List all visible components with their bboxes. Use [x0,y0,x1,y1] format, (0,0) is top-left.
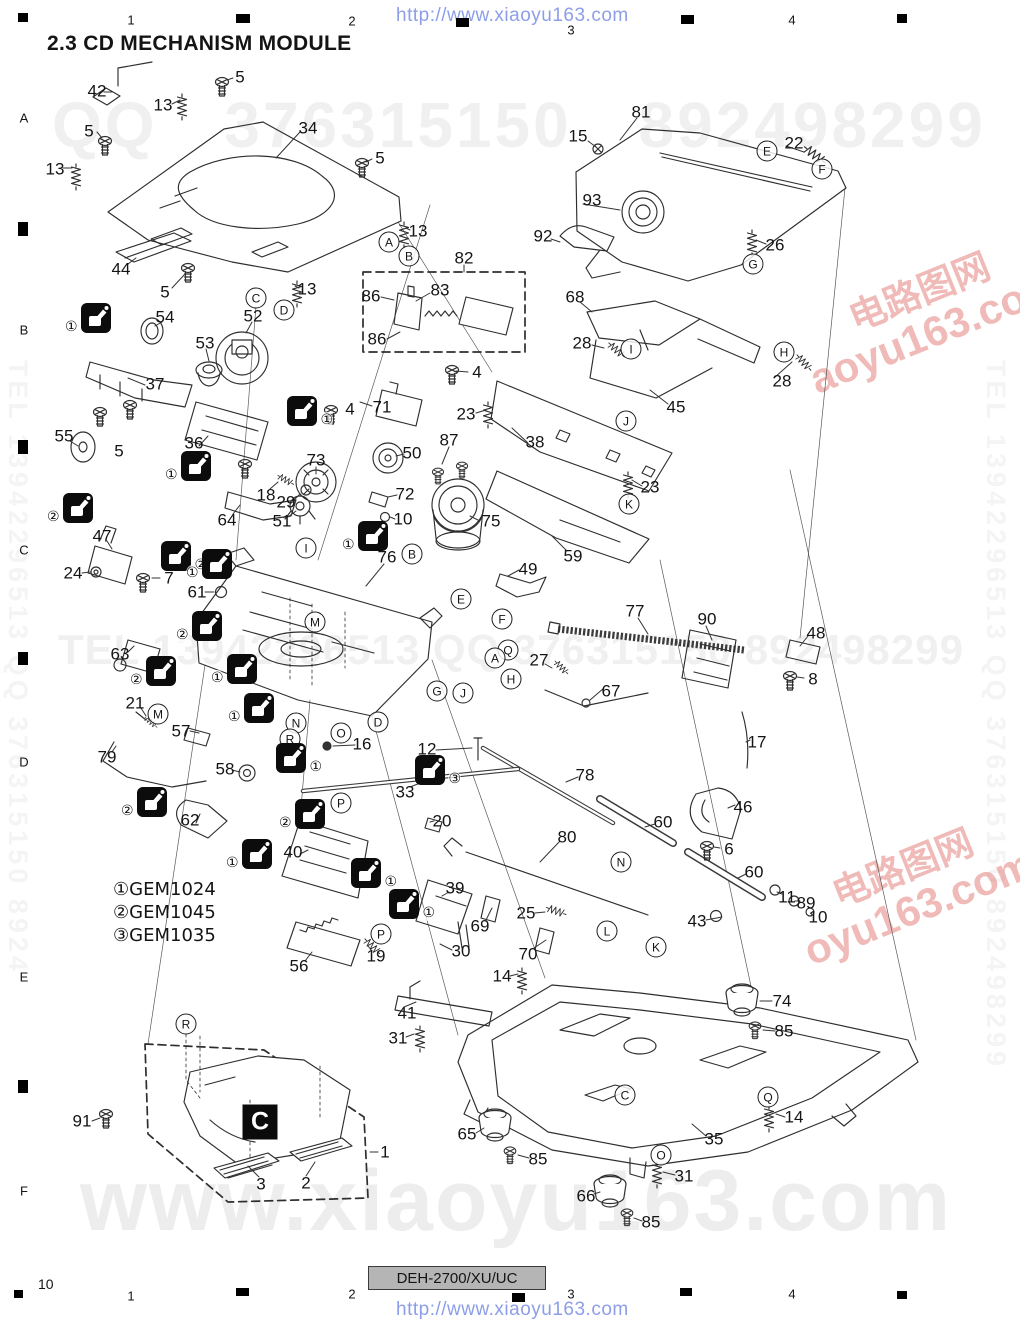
assembly-callout: C [615,1085,636,1106]
registration-mark [18,652,28,665]
assembly-callout: Q [758,1087,779,1108]
oil-can-icon [351,858,381,888]
part-number-label: 2 [301,1175,310,1192]
part-number-label: 59 [564,548,583,565]
part-number-label: 19 [367,948,386,965]
oil-can-icon [358,521,388,551]
part-number-label: 92 [534,228,553,245]
assembly-callout: K [646,937,667,958]
part-number-label: 54 [156,309,175,326]
grid-column-label: 2 [348,1287,355,1302]
registration-mark [456,18,469,27]
lubricant-icon: ① [389,889,419,919]
part-number-label: 14 [493,968,512,985]
part-number-label: 81 [632,104,651,121]
assembly-callout: L [597,921,618,942]
grease-type-marker: ① [211,670,224,686]
part-number-label: 25 [517,905,536,922]
part-number-label: 38 [526,434,545,451]
part-number-label: 13 [154,97,173,114]
lubricant-icon: ② [137,787,167,817]
part-number-label: 57 [172,723,191,740]
part-number-label: 13 [298,281,317,298]
part-number-label: 5 [84,123,93,140]
part-number-label: 71 [373,399,392,416]
registration-mark [18,222,28,236]
lubricant-icon: ① [242,839,272,869]
assembly-callout: M [148,704,169,725]
part-number-label: 21 [126,695,145,712]
part-number-label: 82 [455,250,474,267]
registration-mark [680,1288,692,1296]
grease-type-marker: ① [226,855,239,871]
grease-type-marker: ① [384,874,397,890]
part-number-label: 74 [773,993,792,1010]
lubricant-icon: ③ [415,755,445,785]
assembly-callout: M [305,612,326,633]
registration-mark [18,1080,28,1093]
part-number-label: 85 [529,1151,548,1168]
grease-type-marker: ① [422,905,435,921]
part-number-label: 78 [576,767,595,784]
registration-mark [681,15,694,24]
grid-row-label: B [20,323,29,338]
assembly-callout: J [453,683,474,704]
oil-can-icon [287,396,317,426]
part-number-label: 46 [734,799,753,816]
assembly-callout: O [331,723,352,744]
grease-type-marker: ① [342,537,355,553]
lubricant-icon: ② [63,493,93,523]
part-number-label: 29 [277,494,296,511]
assembly-callout: I [621,339,642,360]
grid-column-label: 1 [127,1289,134,1304]
part-number-label: 20 [433,813,452,830]
assembly-callout: D [368,712,389,733]
part-number-label: 65 [458,1126,477,1143]
part-number-label: 53 [196,335,215,352]
lubricant-icon: ① [202,549,232,579]
part-number-label: 43 [688,913,707,930]
part-number-label: 10 [809,909,828,926]
assembly-callout: E [757,141,778,162]
grease-type-marker: ② [130,672,143,688]
part-number-label: 11 [778,889,796,906]
part-number-label: 37 [146,376,165,393]
part-number-label: 31 [389,1030,408,1047]
part-number-label: 91 [73,1113,92,1130]
part-number-label: 56 [290,958,309,975]
oil-can-icon [202,549,232,579]
legend-item: ②GEM1045 [113,901,216,924]
lubricant-icon: ② [146,656,176,686]
lubricant-icon: ① [181,451,211,481]
part-number-label: 64 [218,512,237,529]
registration-mark [18,440,28,454]
part-number-label: 23 [457,406,476,423]
part-number-label: 31 [675,1168,694,1185]
part-number-label: 87 [440,432,459,449]
oil-can-icon [227,654,257,684]
part-number-label: 49 [519,561,538,578]
grease-type-marker: ③ [448,771,461,787]
part-number-label: 41 [398,1005,417,1022]
registration-mark [14,1290,23,1298]
registration-mark [18,13,28,22]
model-number-box: DEH-2700/XU/UC [368,1266,546,1290]
part-number-label: 63 [111,646,130,663]
legend-item: ①GEM1024 [113,878,216,901]
part-number-label: 61 [188,584,207,601]
registration-mark [512,1293,525,1302]
part-number-label: 28 [773,373,792,390]
page-number: 10 [38,1276,54,1292]
grid-column-label: 1 [127,13,134,28]
lubricant-icon: ① [276,743,306,773]
assembly-callout: P [331,793,352,814]
oil-can-icon [389,889,419,919]
assembly-callout: H [774,342,795,363]
part-number-label: 67 [602,683,621,700]
part-number-label: 8 [808,671,817,688]
oil-can-icon [81,303,111,333]
assembly-callout: B [399,246,420,267]
assembly-callout: C [246,288,267,309]
part-number-label: 14 [785,1109,804,1126]
part-number-label: 24 [64,565,83,582]
part-number-label: 86 [368,331,387,348]
part-number-label: 44 [112,261,131,278]
assembly-callout: J [616,411,637,432]
lubricant-icon: ① [351,858,381,888]
grid-row-label: D [19,755,28,770]
part-number-label: 39 [446,880,465,897]
grease-legend: ①GEM1024②GEM1045③GEM1035 [113,878,216,947]
lubricant-icon: ② [295,799,325,829]
grid-column-label: 2 [348,14,355,29]
part-number-label: 79 [98,749,117,766]
part-number-label: 5 [114,443,123,460]
legend-item: ③GEM1035 [113,924,216,947]
assembly-callout: B [402,544,423,565]
part-number-label: 22 [785,135,804,152]
registration-mark [236,1288,249,1296]
grease-type-marker: ① [165,467,178,483]
part-number-label: 90 [698,611,717,628]
oil-can-icon [181,451,211,481]
part-number-label: 45 [667,399,686,416]
assembly-callout: N [611,852,632,873]
part-number-label: 50 [403,445,422,462]
assembly-callout: O [651,1145,672,1166]
part-number-label: 68 [566,289,585,306]
part-number-label: 28 [573,335,592,352]
part-number-label: 4 [472,364,481,381]
part-number-label: 58 [216,761,235,778]
part-number-label: 4 [345,401,354,418]
part-number-label: 35 [705,1131,724,1148]
part-number-label: 36 [185,435,204,452]
part-number-label: 5 [375,150,384,167]
board-reference-label: C [243,1105,278,1140]
grease-type-marker: ② [176,627,189,643]
registration-mark [236,14,250,23]
part-number-label: 34 [299,120,318,137]
part-number-label: 23 [641,479,660,496]
lubricant-icon: ② [192,611,222,641]
oil-can-icon [244,693,274,723]
part-number-label: 18 [257,487,276,504]
part-number-label: 70 [519,946,538,963]
grid-row-label: F [20,1184,28,1199]
manual-page: QQ 376315150 892498299 TEL 13942296513 Q… [0,0,1020,1320]
oil-can-icon [415,755,445,785]
assembly-callout: I [296,538,317,559]
part-number-label: 85 [775,1023,794,1040]
part-number-label: 85 [642,1214,661,1231]
part-number-label: 93 [583,192,602,209]
oil-can-icon [63,493,93,523]
oil-can-icon [242,839,272,869]
registration-mark [897,14,907,23]
lubricant-icon: ① [244,693,274,723]
oil-can-icon [276,743,306,773]
grease-type-marker: ① [186,565,199,581]
part-number-label: 75 [482,513,501,530]
part-number-label: 16 [353,736,372,753]
grid-row-label: C [19,543,28,558]
part-number-label: 30 [452,943,471,960]
part-number-label: 13 [46,161,65,178]
grease-type-marker: ① [65,319,78,335]
assembly-callout: G [427,681,448,702]
part-number-label: 17 [748,734,767,751]
grid-row-label: A [20,111,29,126]
lubricant-icon: ① [227,654,257,684]
watermark-url-top: http://www.xiaoyu163.com [396,5,629,27]
part-number-label: 42 [88,83,107,100]
assembly-callout: H [501,669,522,690]
part-number-label: 69 [471,918,490,935]
part-number-label: 27 [530,652,549,669]
part-number-label: 52 [244,308,263,325]
part-number-label: 26 [766,237,785,254]
assembly-callout: P [371,924,392,945]
part-number-label: 6 [724,841,733,858]
assembly-callout: G [743,254,764,275]
part-number-label: 3 [256,1176,265,1193]
watermark-url-bottom: http://www.xiaoyu163.com [396,1299,629,1321]
part-number-label: 13 [409,223,428,240]
part-number-label: 77 [626,603,645,620]
part-number-label: 80 [558,829,577,846]
grid-column-label: 4 [788,1287,795,1302]
part-number-label: 83 [431,282,450,299]
grid-row-label: E [20,970,29,985]
diagram-labels-layer: 4213551334513445138115229392268286838647… [0,0,1020,1320]
assembly-callout: E [451,589,472,610]
part-number-label: 7 [164,570,173,587]
part-number-label: 76 [378,549,397,566]
grease-type-marker: ② [121,803,134,819]
page-title: 2.3 CD MECHANISM MODULE [47,32,351,56]
grease-type-marker: ① [309,759,322,775]
part-number-label: 5 [235,69,244,86]
part-number-label: 62 [181,812,200,829]
part-number-label: 40 [284,844,303,861]
part-number-label: 60 [654,814,673,831]
part-number-label: 51 [273,513,292,530]
assembly-callout: R [176,1014,197,1035]
oil-can-icon [137,787,167,817]
oil-can-icon [146,656,176,686]
part-number-label: 10 [394,511,413,528]
oil-can-icon [295,799,325,829]
part-number-label: 72 [396,486,415,503]
grease-type-marker: ① [228,709,241,725]
part-number-label: 5 [160,284,169,301]
part-number-label: 1 [380,1144,389,1161]
oil-can-icon [192,611,222,641]
grease-type-marker: ① [320,412,333,428]
part-number-label: 33 [396,784,415,801]
part-number-label: 15 [569,128,588,145]
assembly-callout: K [619,494,640,515]
grid-column-label: 4 [788,13,795,28]
part-number-label: 48 [807,625,826,642]
lubricant-icon: ① [81,303,111,333]
part-number-label: 55 [55,428,74,445]
grease-type-marker: ② [47,509,60,525]
lubricant-icon: ① [358,521,388,551]
part-number-label: 60 [745,864,764,881]
assembly-callout: F [492,609,513,630]
assembly-callout: A [379,232,400,253]
assembly-callout: A [485,648,506,669]
assembly-callout: F [812,159,833,180]
assembly-callout: D [274,300,295,321]
registration-mark [897,1291,907,1299]
part-number-label: 86 [362,288,381,305]
lubricant-icon: ① [287,396,317,426]
part-number-label: 66 [577,1188,596,1205]
grease-type-marker: ② [279,815,292,831]
part-number-label: 47 [93,528,112,545]
part-number-label: 73 [307,452,326,469]
